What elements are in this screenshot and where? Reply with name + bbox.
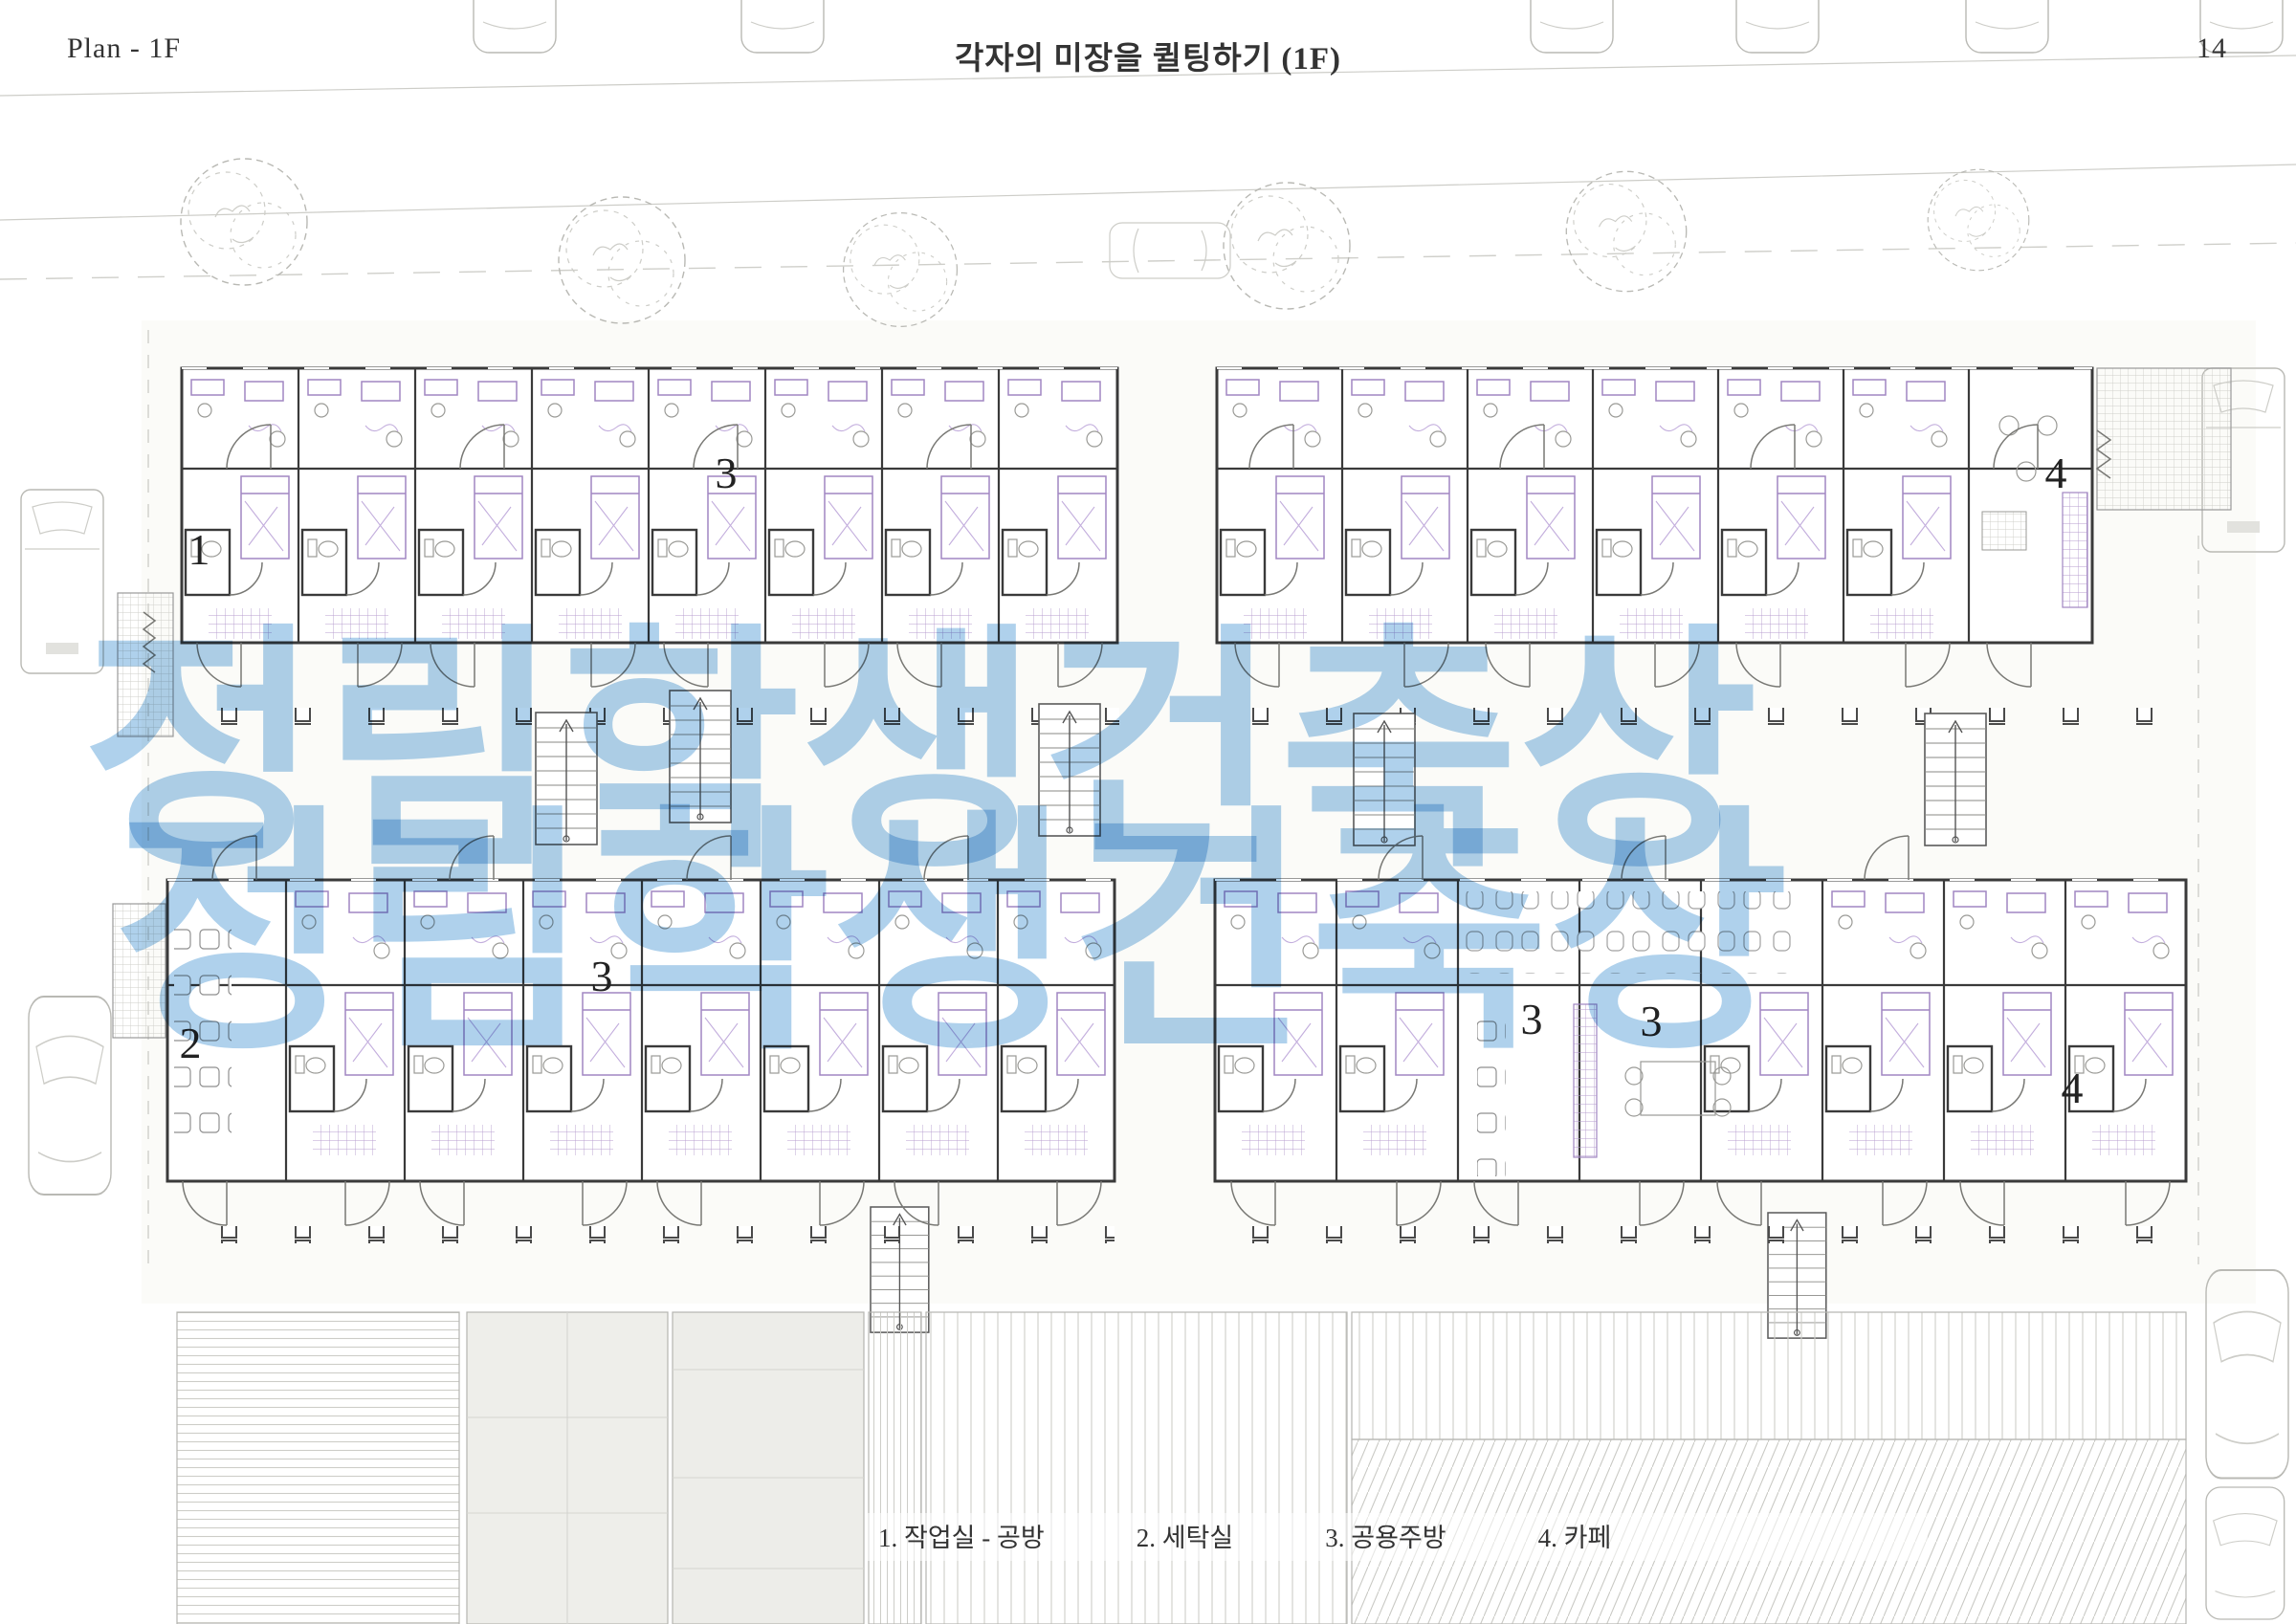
- roof-plans: [177, 1312, 2186, 1624]
- room-number-label: 3: [1641, 996, 1663, 1046]
- page-title: 각자의 미장을 퀼팅하기 (1F): [0, 33, 2296, 78]
- column-row-lower-left: [206, 1226, 1115, 1243]
- room-number-label: 4: [2062, 1063, 2084, 1113]
- page-number: 14: [2197, 33, 2227, 65]
- legend-item: 4. 카페: [1538, 1517, 1612, 1554]
- column-row-upper-left: [215, 708, 1119, 725]
- room-number-label: 3: [1521, 994, 1543, 1044]
- legend: 1. 작업실 - 공방2. 세탁실3. 공용주방4. 카페: [878, 1517, 1611, 1554]
- site-plan-drawing: [0, 0, 2296, 1624]
- trees: [181, 159, 2029, 326]
- room-number-label: 2: [180, 1018, 202, 1068]
- building-lower-right: [1215, 836, 2186, 1225]
- building-lower-left: [113, 836, 1115, 1225]
- building-upper-right: [1217, 368, 2231, 687]
- room-number-label: 3: [716, 448, 738, 498]
- room-number-label: 1: [188, 524, 210, 575]
- legend-item: 2. 세탁실: [1137, 1517, 1234, 1554]
- legend-item: 1. 작업실 - 공방: [878, 1517, 1045, 1554]
- legend-item: 3. 공용주방: [1325, 1517, 1446, 1554]
- room-number-label: 4: [2045, 448, 2067, 498]
- plan-sheet: Plan - 1F 각자의 미장을 퀼팅하기 (1F) 14 13423334 …: [0, 0, 2296, 1624]
- column-row-lower-right: [1217, 1226, 2186, 1243]
- room-number-label: 3: [591, 951, 613, 1001]
